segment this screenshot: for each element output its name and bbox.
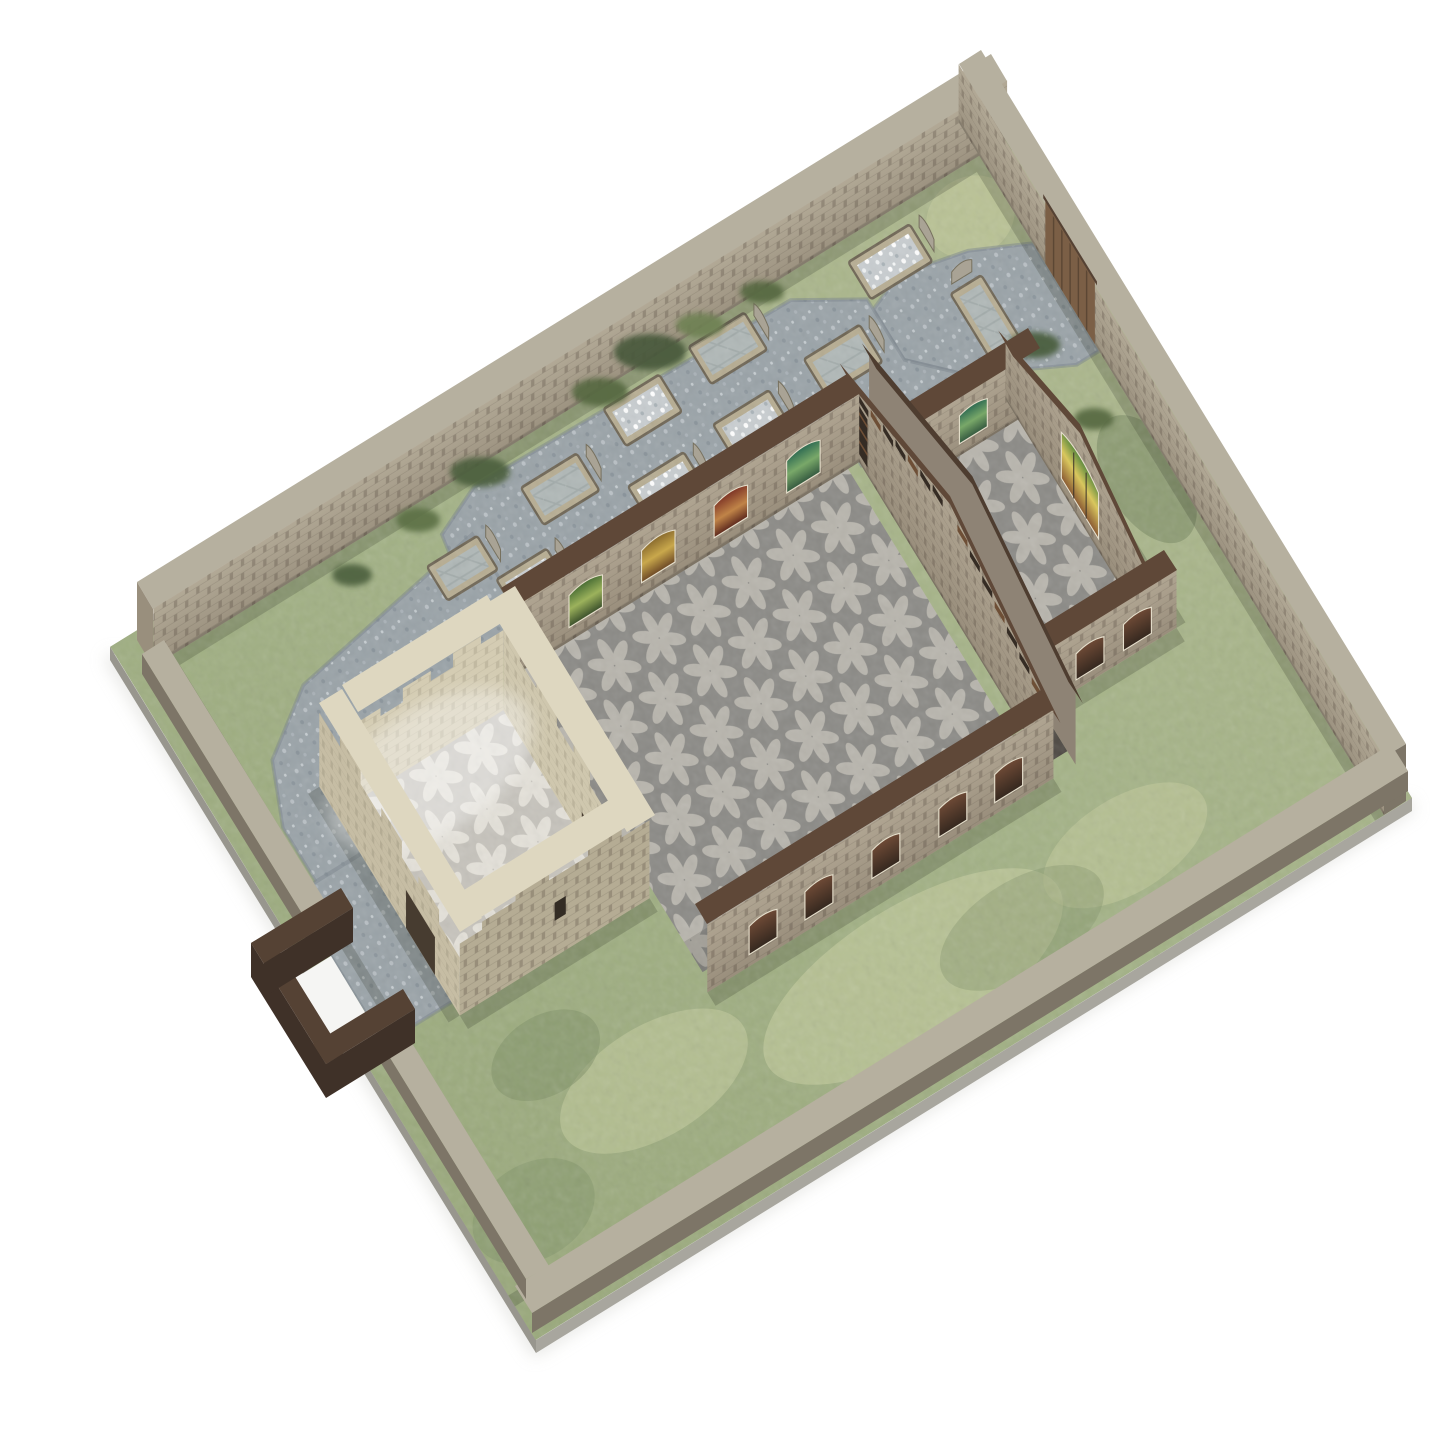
church-model-photo — [0, 0, 1445, 1445]
bush — [332, 564, 372, 586]
photo-stage — [0, 0, 1445, 1445]
bush — [676, 313, 724, 337]
bush — [572, 378, 628, 406]
bush — [614, 334, 686, 370]
bush — [396, 508, 440, 532]
bush — [450, 457, 510, 487]
bush — [740, 281, 784, 303]
